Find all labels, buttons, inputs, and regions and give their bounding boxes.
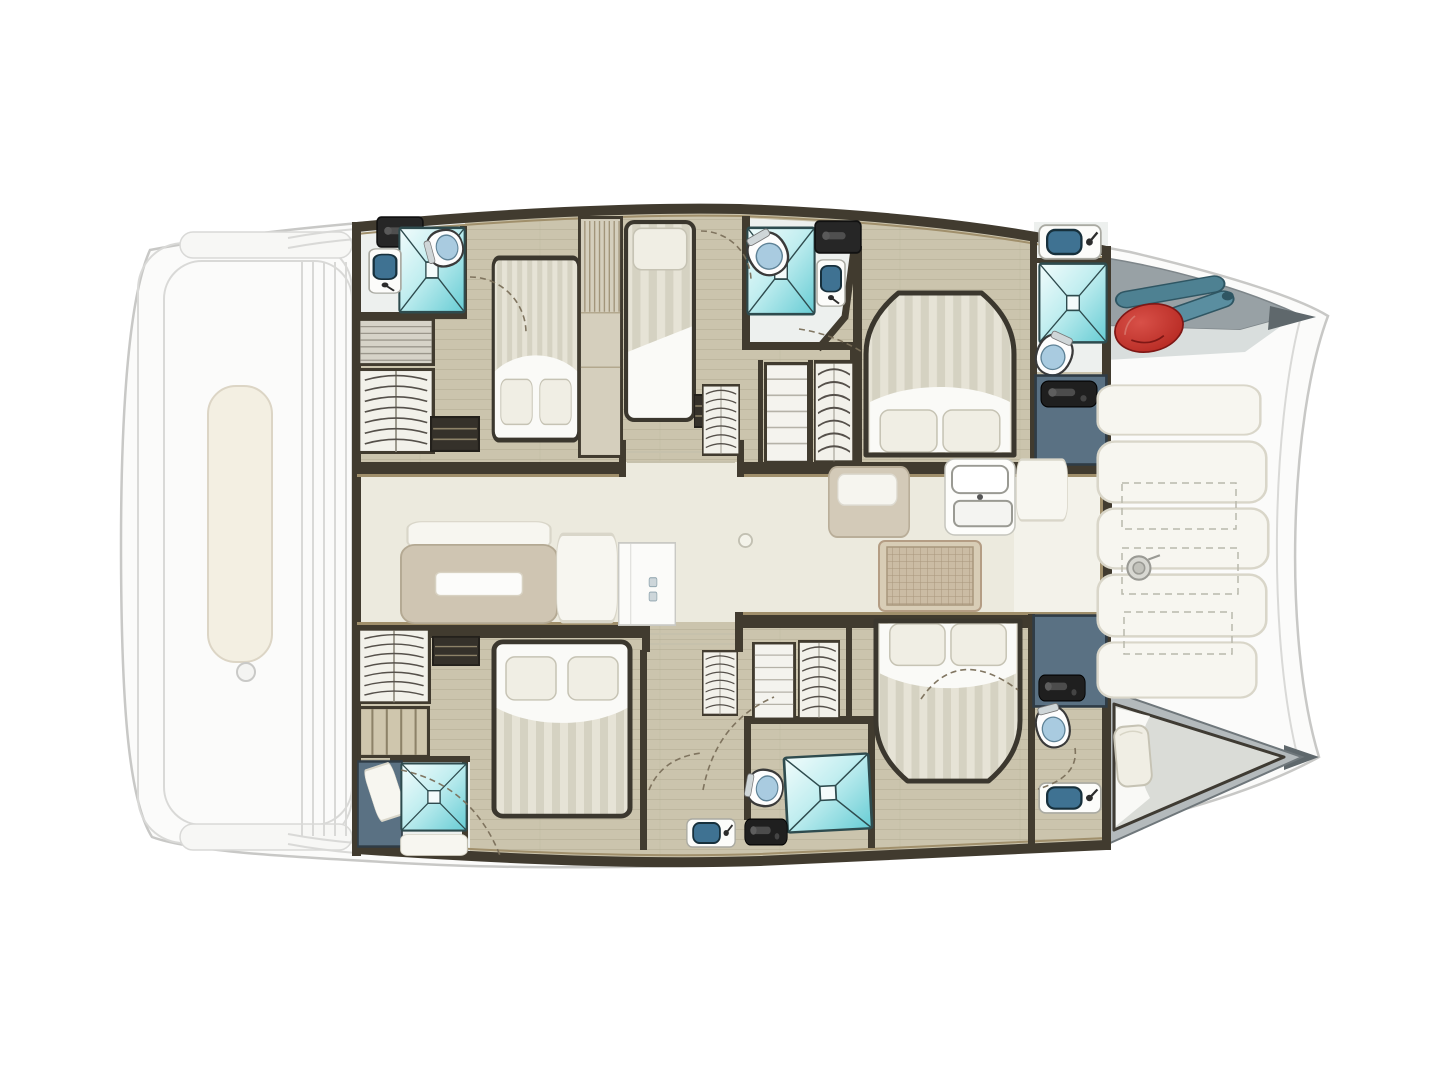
port-mid-bed <box>626 222 694 420</box>
stbd-corridor-wall-left <box>640 650 647 850</box>
stbd-fwd-bath-sink <box>1039 783 1101 813</box>
aft-deck-knob <box>237 663 255 681</box>
port-fwd-storage-handle <box>1041 381 1097 407</box>
salon-fridge <box>619 543 676 625</box>
forepeak-pillow <box>1113 725 1152 788</box>
stbd-mid-bath-wall-left <box>744 716 751 820</box>
galley-sink <box>945 459 1015 535</box>
port-mid-bath-wall-bottom <box>744 342 858 350</box>
port-fwd-cabin-wall <box>853 246 862 464</box>
port-mid-bath-sink <box>817 260 845 306</box>
port-corridor-hanging-locker <box>703 385 739 454</box>
port-aft-hanging-locker <box>359 370 434 453</box>
stbd-stairs-jamb-r <box>735 612 743 652</box>
salon-bench-seat <box>557 534 618 621</box>
stbd-aft-bed <box>494 642 630 816</box>
stbd-corridor-wall-right <box>846 618 852 716</box>
salon-pole <box>739 534 752 547</box>
port-corridor-shelf <box>766 364 809 463</box>
salon-nav-seat <box>829 467 909 537</box>
port-mid-bath-counter <box>815 221 861 253</box>
stbd-corridor-shelf <box>753 643 794 719</box>
aft-deck-bench <box>208 386 272 662</box>
port-salon-wall-a-trim <box>357 474 625 477</box>
stbd-fwd-bed <box>876 621 1020 781</box>
port-aft-shelf <box>359 319 434 364</box>
cockpit-seat-1 <box>1098 385 1261 434</box>
port-aft-bed <box>493 258 578 440</box>
port-aft-steps <box>431 417 479 451</box>
stbd-aft-counter <box>401 835 468 856</box>
stern-step-top <box>180 232 352 258</box>
stbd-corridor-hanging-locker-2 <box>799 641 839 718</box>
stbd-mid-bath-shower <box>784 753 872 832</box>
galley-stove <box>879 541 981 611</box>
stbd-aft-steps <box>433 637 479 665</box>
cockpit-seat-2 <box>1098 442 1267 503</box>
floorplan-canvas <box>0 0 1440 1080</box>
cockpit-seat-4 <box>1098 575 1267 637</box>
port-fwd-bath-shower <box>1039 264 1106 343</box>
stbd-mid-bath-door <box>745 819 787 845</box>
port-fwd-bath-sink <box>1039 225 1101 259</box>
galley-cabinet <box>1017 460 1068 521</box>
stbd-aft-shower <box>401 763 466 830</box>
salon-table <box>401 545 557 623</box>
stern-step-bottom <box>180 824 352 850</box>
port-aft-bath-sink <box>369 249 401 293</box>
catamaran-floorplan <box>0 0 1440 1080</box>
cockpit-seat-3 <box>1098 509 1269 569</box>
stbd-mid-bath-sink <box>687 819 735 847</box>
port-corridor-hanging-locker-2 <box>815 362 853 462</box>
port-cabin-divider-wardrobe <box>579 218 621 457</box>
port-fwd-bed <box>866 293 1014 455</box>
stbd-fwd-storage-handle <box>1039 675 1085 701</box>
port-corridor-wall-1 <box>758 360 763 466</box>
stbd-corridor-hanging-locker <box>703 651 737 715</box>
stbd-aft-hanging-locker <box>359 629 430 702</box>
stbd-aft-shelf <box>360 708 429 757</box>
